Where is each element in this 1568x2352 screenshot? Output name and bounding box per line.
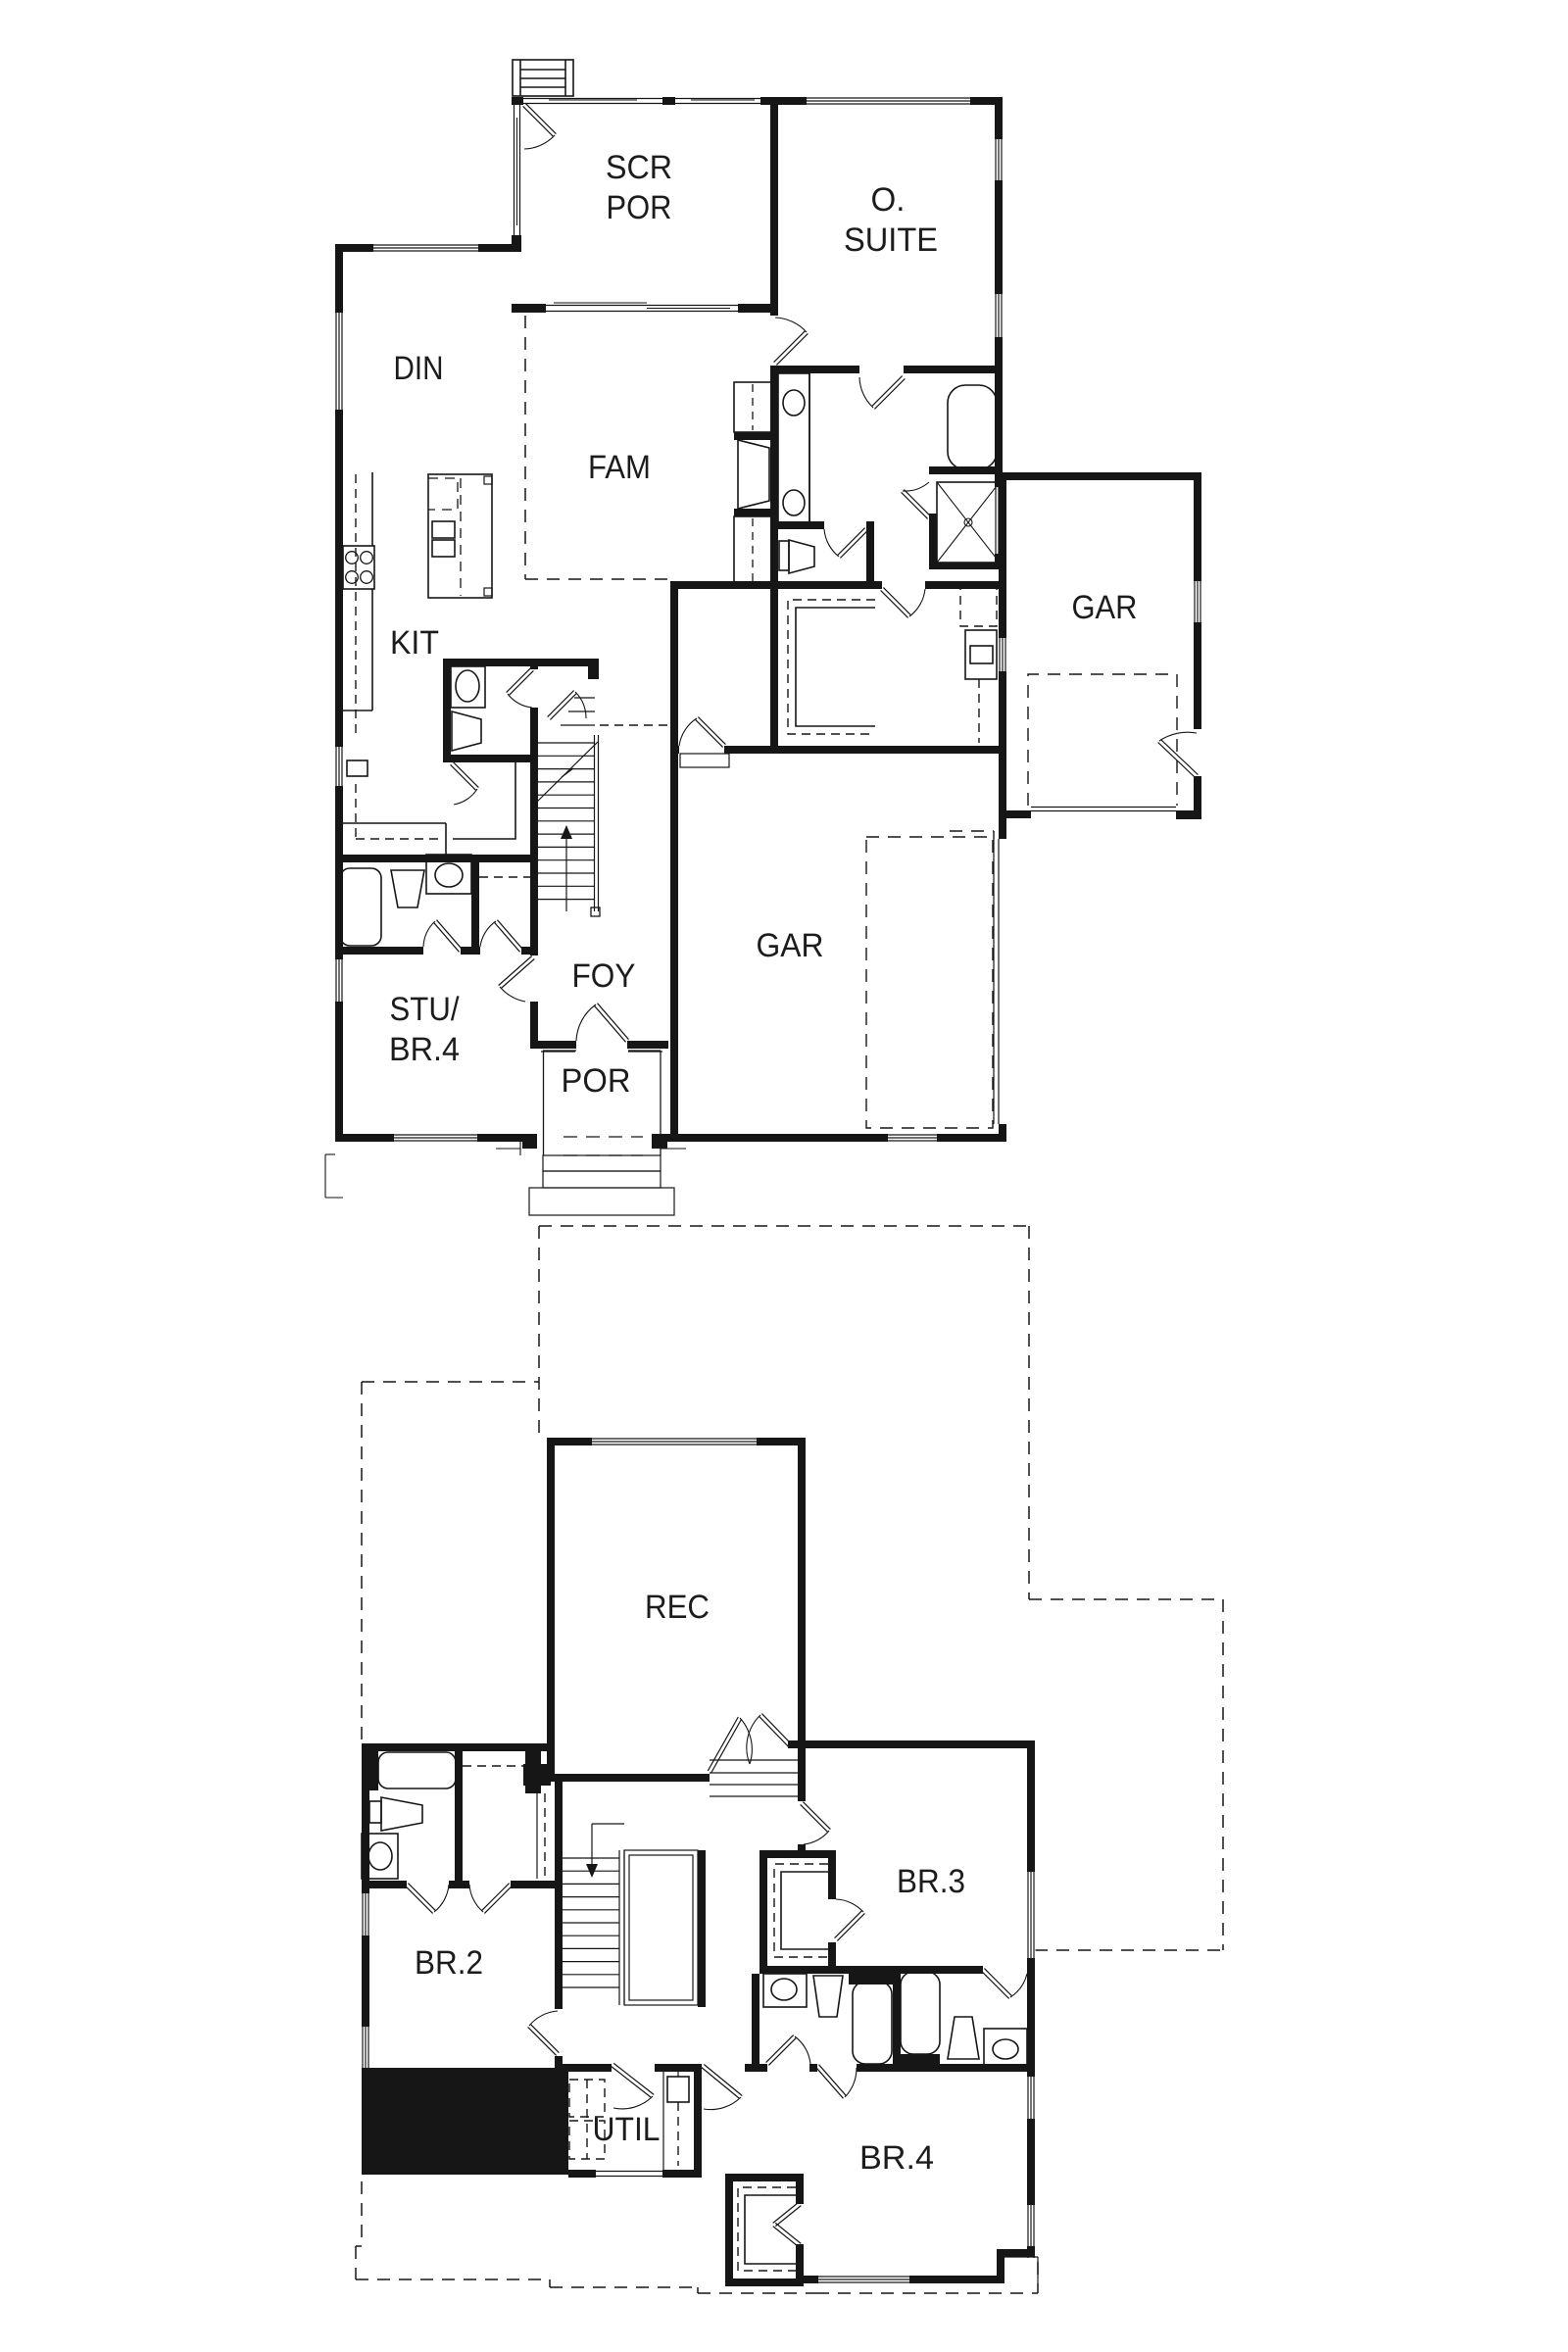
svg-text:FOY: FOY bbox=[572, 957, 636, 995]
svg-text:DIN: DIN bbox=[394, 350, 444, 387]
svg-text:KIT: KIT bbox=[390, 624, 439, 661]
svg-text:POR: POR bbox=[607, 189, 672, 226]
svg-text:POR: POR bbox=[562, 1062, 631, 1100]
svg-text:BR.3: BR.3 bbox=[897, 1863, 965, 1900]
svg-text:REC: REC bbox=[645, 1589, 710, 1626]
svg-text:GAR: GAR bbox=[1072, 589, 1138, 626]
svg-text:BR.2: BR.2 bbox=[415, 1944, 483, 1982]
svg-text:UTIL: UTIL bbox=[593, 2111, 661, 2148]
svg-text:SUITE: SUITE bbox=[844, 221, 938, 259]
svg-text:O.: O. bbox=[871, 181, 906, 219]
svg-text:STU/: STU/ bbox=[390, 991, 461, 1028]
svg-text:GAR: GAR bbox=[757, 927, 824, 964]
svg-text:SCR: SCR bbox=[606, 149, 672, 186]
svg-text:FAM: FAM bbox=[588, 449, 651, 486]
svg-text:BR.4: BR.4 bbox=[389, 1031, 460, 1068]
svg-text:BR.4: BR.4 bbox=[859, 2139, 934, 2177]
